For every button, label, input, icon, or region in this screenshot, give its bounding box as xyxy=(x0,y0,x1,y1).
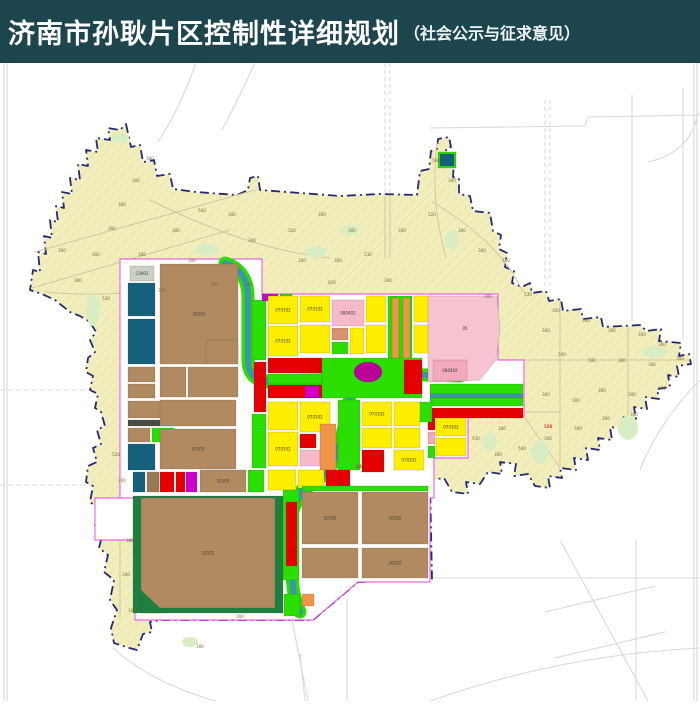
parcel xyxy=(430,408,523,418)
land-code-label: 530 xyxy=(364,252,372,257)
parcel-label: 070102 xyxy=(401,458,417,463)
parcel xyxy=(300,450,320,466)
land-code-label: 300 xyxy=(158,288,166,293)
road xyxy=(113,648,215,701)
parcel xyxy=(394,428,420,448)
parcel xyxy=(268,470,296,490)
land-code-label: 300 xyxy=(118,202,126,207)
parcel xyxy=(176,472,185,492)
parcel-label: C0903 xyxy=(136,271,149,276)
land-code-label: 300 xyxy=(138,252,146,257)
parcel xyxy=(403,298,410,362)
parcel xyxy=(366,296,386,322)
green-patch xyxy=(195,244,219,256)
land-code-label: 300 xyxy=(126,538,134,543)
parcel xyxy=(362,450,384,472)
road xyxy=(158,63,196,142)
parcel xyxy=(188,367,238,397)
green-patch xyxy=(111,133,129,143)
land-code-label: 300 xyxy=(172,228,180,233)
parcel xyxy=(128,283,155,316)
land-code-label: 300 xyxy=(572,398,580,403)
core-area xyxy=(95,498,135,540)
land-code-label: 520 xyxy=(288,228,296,233)
parcel-label: 20102 xyxy=(389,561,402,566)
road xyxy=(545,586,655,612)
land-code-label: 300 xyxy=(618,358,626,363)
road xyxy=(300,653,305,701)
parcel-label: 10103 xyxy=(217,479,230,484)
parcel xyxy=(147,472,159,492)
green-patch xyxy=(483,433,497,451)
land-code-label: 300 xyxy=(58,248,66,253)
land-code-label: 300 xyxy=(608,328,616,333)
parcel xyxy=(428,446,435,458)
land-code-label: 300 xyxy=(574,426,582,431)
parcel xyxy=(302,548,358,578)
parcel xyxy=(354,362,382,382)
land-code-label: 300 xyxy=(628,392,636,397)
land-code-label: 300 xyxy=(552,308,560,313)
land-code-label: 500 xyxy=(198,208,206,213)
parcel-label: 10103 xyxy=(192,447,205,452)
page-title: 济南市孙耿片区控制性详细规划 xyxy=(8,12,400,51)
parcel xyxy=(252,300,266,360)
parcel xyxy=(298,470,324,488)
parcel xyxy=(404,360,422,394)
land-code-label: 300 xyxy=(108,226,116,231)
parcel xyxy=(430,394,523,398)
road xyxy=(292,620,308,701)
parcel xyxy=(320,424,336,470)
title-banner: 济南市孙耿片区控制性详细规划 （社会公示与征求意见） xyxy=(0,0,700,63)
land-code-label: 300 xyxy=(498,426,506,431)
land-code-label: 300 xyxy=(458,228,466,233)
parcel-label: 070102 xyxy=(369,412,385,417)
land-code-label: 530 xyxy=(472,436,480,441)
parcel xyxy=(248,470,264,492)
land-code-label: 520 xyxy=(112,452,120,457)
parcel-label: 070102 xyxy=(275,308,291,313)
road-name-label: 308 xyxy=(544,424,553,430)
parcel xyxy=(394,402,420,426)
land-code-label: 300 xyxy=(582,318,590,323)
land-code-label: 300 xyxy=(92,252,100,257)
land-code-label: 300 xyxy=(558,352,566,357)
land-code-label: 300 xyxy=(484,294,492,299)
parcel-label: 080402 xyxy=(442,368,458,373)
land-code-label: 300 xyxy=(132,178,140,183)
land-code-label: 300 xyxy=(298,258,306,263)
green-patch xyxy=(86,294,100,326)
land-code-label: 300 xyxy=(502,258,510,263)
parcel-label: 080402 xyxy=(340,311,356,316)
parcel xyxy=(420,402,432,422)
parcel-label: 070102 xyxy=(307,307,323,312)
land-code-label: 300 xyxy=(122,572,130,577)
land-code-label: 300 xyxy=(210,282,218,287)
parcel xyxy=(332,342,348,354)
parcel-label: 05 xyxy=(462,326,468,331)
parcel xyxy=(436,438,466,456)
parcel xyxy=(160,367,186,397)
parcel xyxy=(428,432,435,444)
parcel xyxy=(268,358,322,373)
land-code-label: 300 xyxy=(118,478,126,483)
land-code-label: 300 xyxy=(318,212,326,217)
land-code-label: 300 xyxy=(188,258,196,263)
parcel xyxy=(268,374,322,384)
parcel xyxy=(128,367,155,382)
green-patch xyxy=(445,230,459,250)
land-code-label: 300 xyxy=(146,156,154,161)
land-code-label: 520 xyxy=(102,296,110,301)
parcel xyxy=(338,400,360,470)
land-code-label: 530 xyxy=(524,292,532,297)
land-code-label: 300 xyxy=(630,412,638,417)
land-code-label: 300 xyxy=(236,614,244,619)
parcel xyxy=(430,384,523,394)
land-code-label: 500 xyxy=(432,158,440,163)
land-code-label: 300 xyxy=(228,212,236,217)
land-code-label: 300 xyxy=(598,388,606,393)
land-code-label: 300 xyxy=(648,362,656,367)
land-code-label: 300 xyxy=(348,228,356,233)
parcel xyxy=(332,328,348,340)
land-code-label: 520 xyxy=(428,212,436,217)
parcel xyxy=(430,398,523,406)
land-code-label: 300 xyxy=(334,258,342,263)
planning-map: C090310101101030701020701020701020804020… xyxy=(0,63,700,701)
parcel xyxy=(300,434,316,448)
land-code-label: 300 xyxy=(478,248,486,253)
parcel xyxy=(284,594,300,616)
land-code-label: 500 xyxy=(518,446,526,451)
parcel xyxy=(128,319,155,364)
land-code-label: 300 xyxy=(658,386,666,391)
land-code-label: 300 xyxy=(494,452,502,457)
parcel-label: 070102 xyxy=(275,447,291,452)
land-code-label: 620 xyxy=(328,280,336,285)
land-code-label: 300 xyxy=(544,436,552,441)
planning-map-svg: C090310101101030701020701020701020804020… xyxy=(0,63,700,701)
green-patch xyxy=(531,440,549,464)
parcel xyxy=(252,414,266,468)
parcel xyxy=(440,154,454,166)
land-code-label: 300 xyxy=(128,608,136,613)
parcel xyxy=(350,328,364,354)
green-patch xyxy=(306,246,326,258)
parcel xyxy=(128,384,155,398)
land-code-label: 300 xyxy=(658,342,666,347)
parcel xyxy=(160,400,236,426)
parcel xyxy=(268,402,298,430)
land-code-label: 500 xyxy=(588,358,596,363)
parcel-label: 10102 xyxy=(324,516,337,521)
parcel xyxy=(305,386,319,397)
parcel-label: 070102 xyxy=(275,339,291,344)
road xyxy=(222,63,255,130)
road xyxy=(648,112,698,162)
parcel xyxy=(206,340,238,364)
green-patch xyxy=(618,416,638,440)
parcel xyxy=(362,428,392,448)
land-code-label: 300 xyxy=(542,328,550,333)
parcel xyxy=(133,472,145,492)
parcel xyxy=(392,298,399,362)
parcel xyxy=(302,594,314,606)
parcel xyxy=(254,362,266,412)
road xyxy=(560,540,648,701)
parcel xyxy=(160,472,174,492)
land-code-label: 300 xyxy=(384,278,392,283)
land-code-label: 300 xyxy=(676,356,684,361)
parcel-label: 10102 xyxy=(389,516,402,521)
parcel-label: 070102 xyxy=(307,415,323,420)
page-subtitle: （社会公示与征求意见） xyxy=(404,20,580,44)
land-code-label: 300 xyxy=(244,282,252,287)
land-code-label: 300 xyxy=(542,392,550,397)
land-code-label: 300 xyxy=(448,178,456,183)
land-code-label: 300 xyxy=(602,416,610,421)
parcel-label: 070102 xyxy=(443,425,459,430)
road xyxy=(555,632,665,658)
parcel xyxy=(286,502,297,566)
parcel xyxy=(366,325,386,353)
parcel xyxy=(128,428,150,442)
parcel-label: 10101 xyxy=(202,551,215,556)
parcel xyxy=(302,486,428,491)
parcel xyxy=(300,325,330,353)
land-code-label: 300 xyxy=(196,644,204,649)
road-name-label: 248 xyxy=(356,464,365,470)
parcel xyxy=(186,472,197,492)
land-code-label: 300 xyxy=(398,228,406,233)
land-code-label: 300 xyxy=(74,278,82,283)
road xyxy=(430,115,700,128)
green-patch xyxy=(643,346,667,358)
land-code-label: 300 xyxy=(638,332,646,337)
land-code-label: 300 xyxy=(248,238,256,243)
parcel xyxy=(128,444,155,470)
parcel-label: 10101 xyxy=(193,312,206,317)
